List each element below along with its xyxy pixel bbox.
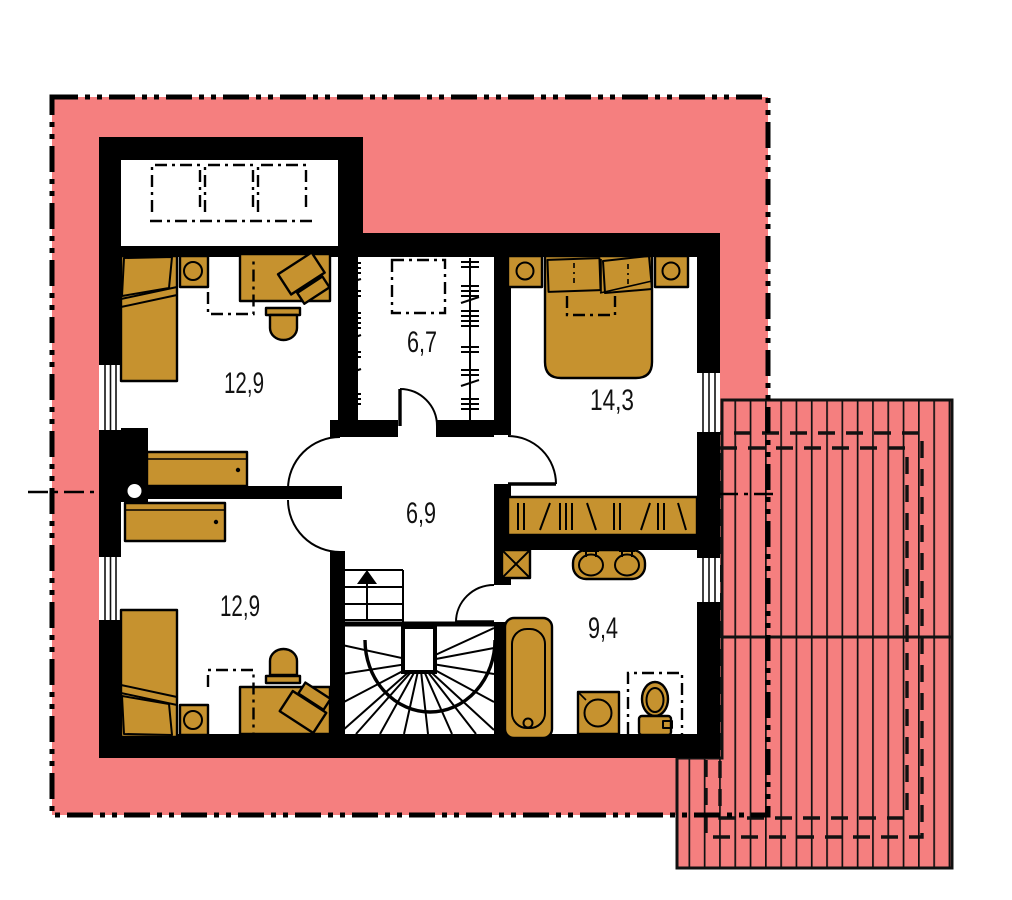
stair-newel-post — [403, 627, 435, 672]
room-area-label: 6,9 — [406, 497, 436, 530]
room-area-label: 9,4 — [588, 612, 618, 645]
room-area-label: 14,3 — [590, 384, 634, 417]
knob — [214, 520, 218, 524]
window-left-upper — [99, 365, 121, 430]
chair — [270, 315, 297, 340]
floor-plan-page: 12,9 6,7 14,3 6,9 — [0, 0, 1012, 900]
room-area-label: 12,9 — [224, 367, 264, 400]
floor-plan-drawing: 12,9 6,7 14,3 6,9 — [0, 0, 1012, 900]
toilet-tank — [639, 716, 671, 735]
sink-vanity — [573, 550, 645, 579]
bed — [121, 256, 177, 381]
room-area-label: 12,9 — [220, 590, 260, 623]
double-bed — [545, 256, 652, 378]
bed — [121, 610, 177, 737]
window-right-upper — [697, 373, 720, 432]
nightstand — [508, 256, 542, 287]
knob — [236, 468, 240, 472]
chair-back — [266, 676, 300, 683]
room-area-label: 6,7 — [407, 326, 437, 359]
room-hallway: 6,9 — [406, 497, 436, 530]
window-left-lower — [99, 557, 121, 620]
chimney-flue — [128, 484, 142, 498]
wardrobe-band — [508, 497, 697, 535]
wardrobe — [125, 503, 225, 541]
window-right-lower — [697, 558, 720, 602]
wardrobe — [147, 452, 247, 486]
nightstand — [655, 256, 688, 287]
chair — [270, 649, 297, 675]
